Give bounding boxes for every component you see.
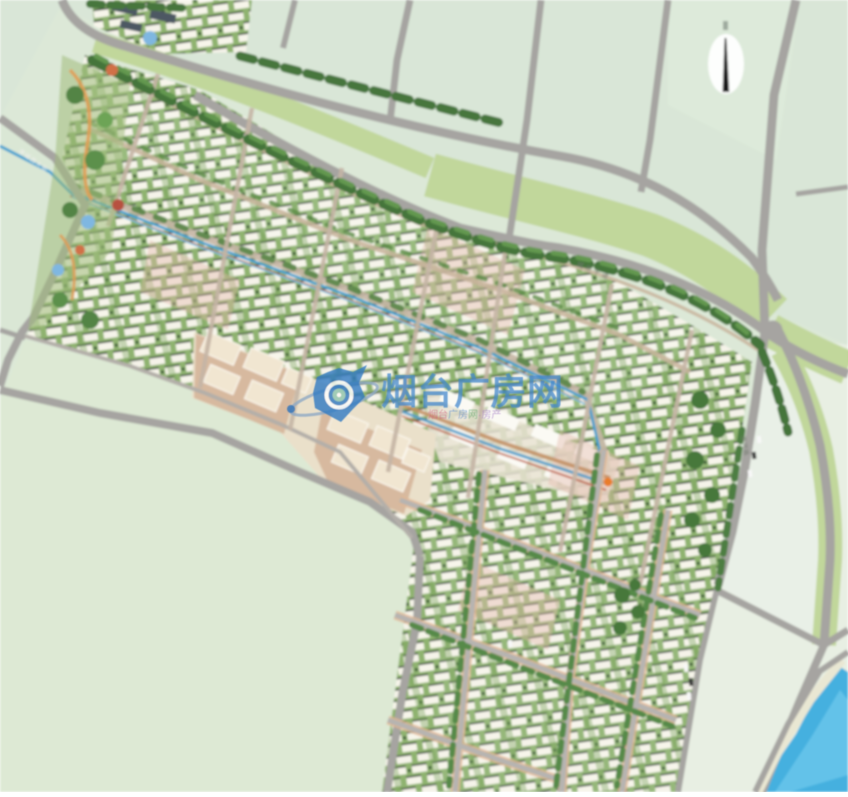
svg-text:烟台广房网: 烟台广房网 — [381, 371, 564, 412]
svg-text:烟台广房网·房产: 烟台广房网·房产 — [428, 408, 501, 421]
